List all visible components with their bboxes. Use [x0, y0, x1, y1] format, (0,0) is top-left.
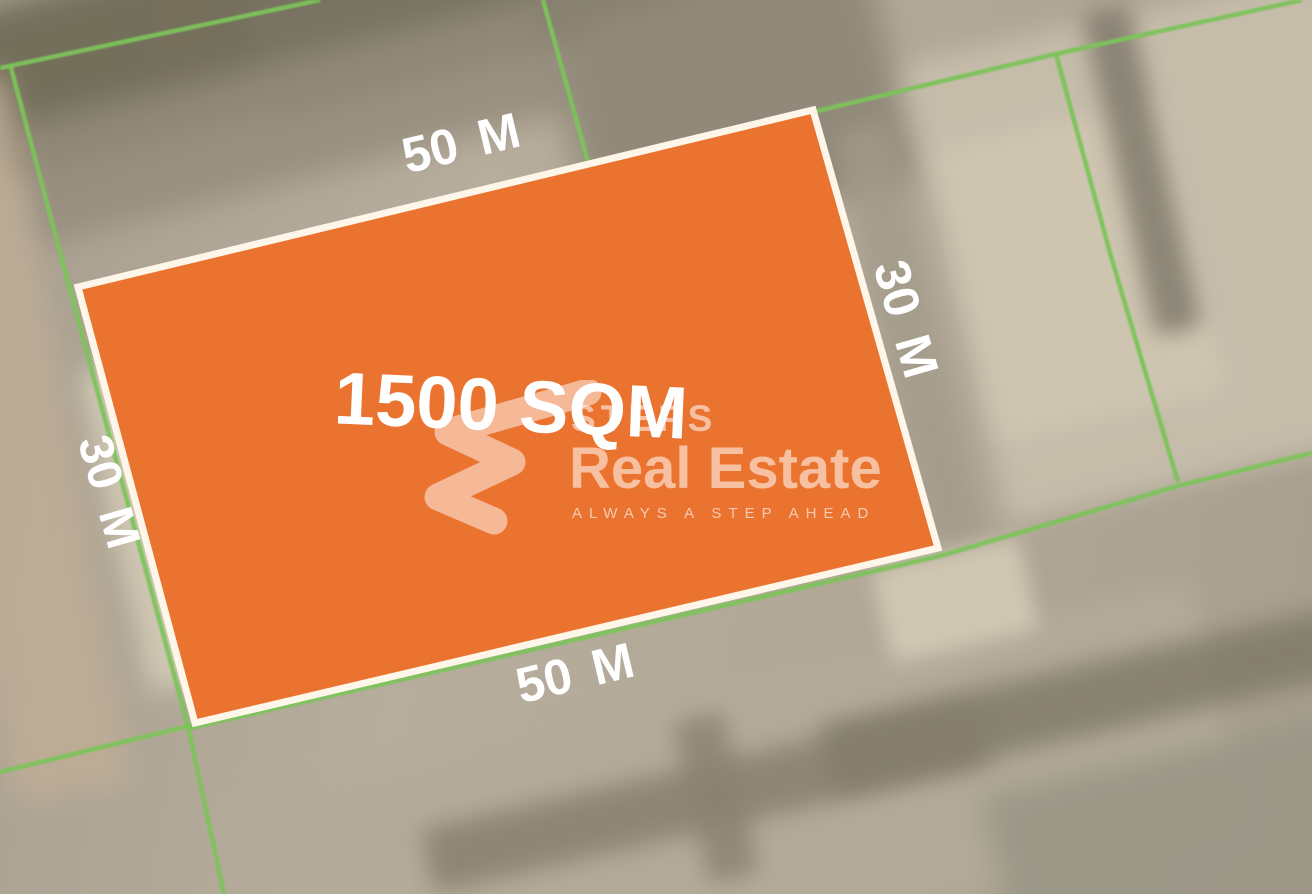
satellite-plot-ad: STEPS Real Estate ALWAYS A STEP AHEAD 50… — [0, 0, 1312, 894]
plot-area-label: 1500 SQM — [333, 361, 690, 450]
brand-tagline: ALWAYS A STEP AHEAD — [572, 506, 875, 521]
